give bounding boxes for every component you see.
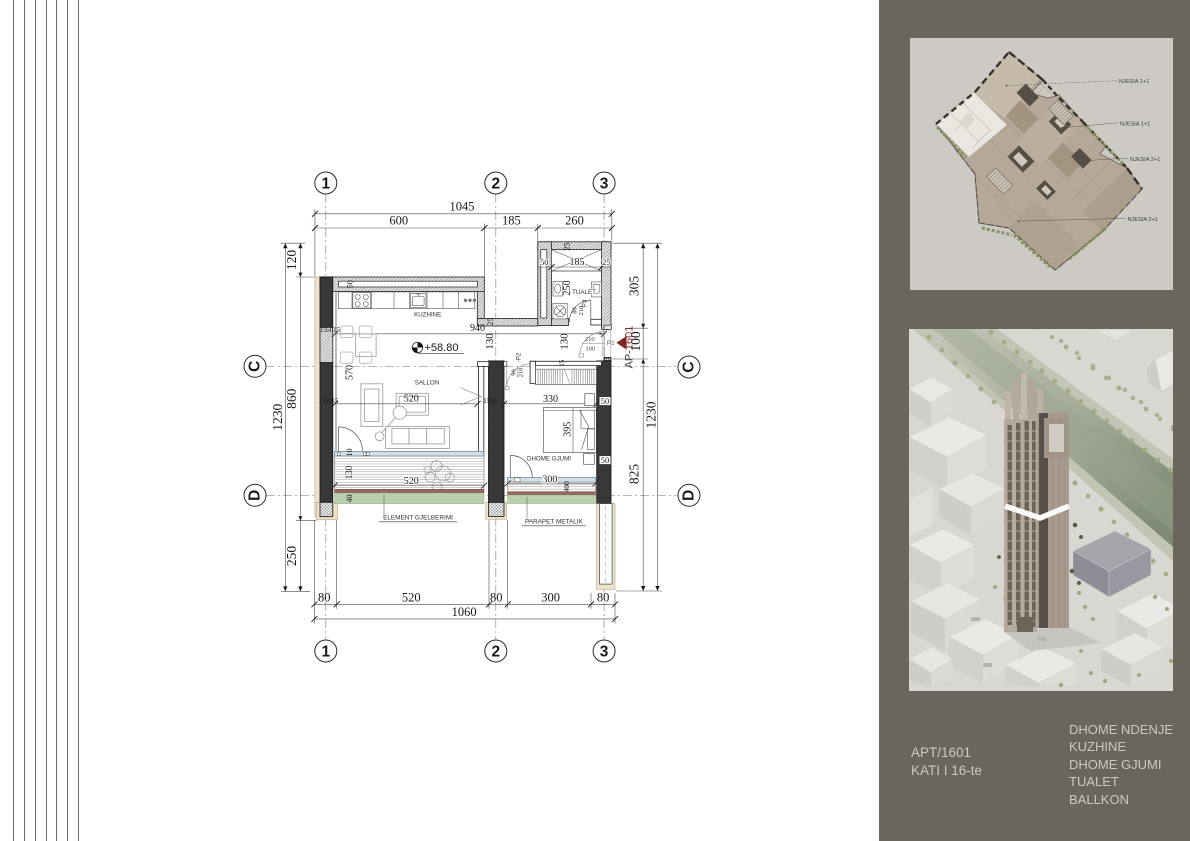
svg-text:50: 50	[345, 280, 354, 288]
svg-text:KUZHINE: KUZHINE	[414, 311, 441, 318]
svg-text:305: 305	[627, 276, 642, 297]
svg-text:ELEMENT GJELBERIMI: ELEMENT GJELBERIMI	[383, 515, 453, 522]
svg-text:NJESIA 1+1: NJESIA 1+1	[1119, 79, 1149, 85]
svg-text:185: 185	[570, 257, 585, 268]
svg-text:80: 80	[490, 591, 503, 605]
svg-text:130: 130	[484, 333, 496, 350]
svg-text:15: 15	[333, 326, 341, 334]
svg-text:210: 210	[517, 368, 524, 378]
svg-text:50: 50	[540, 257, 549, 267]
svg-text:260: 260	[565, 214, 584, 228]
svg-text:185: 185	[502, 214, 521, 228]
svg-text:D: D	[681, 490, 698, 501]
svg-text:80: 80	[597, 591, 610, 605]
svg-text:40: 40	[345, 495, 354, 503]
svg-text:300: 300	[541, 591, 560, 605]
svg-text:1230: 1230	[644, 401, 659, 428]
svg-text:AP-1601: AP-1601	[624, 326, 636, 369]
svg-text:NJESIA 1+1: NJESIA 1+1	[1120, 122, 1150, 128]
svg-text:120: 120	[284, 250, 299, 271]
svg-text:1060: 1060	[452, 605, 477, 619]
svg-text:600: 600	[389, 214, 408, 228]
svg-text:100: 100	[585, 346, 595, 353]
svg-text:2: 2	[491, 176, 500, 193]
svg-text:+58.80: +58.80	[425, 342, 459, 354]
svg-text:NJESIA 2+1: NJESIA 2+1	[1130, 157, 1160, 163]
svg-text:90: 90	[510, 369, 517, 376]
svg-text:50: 50	[601, 396, 610, 406]
svg-text:80: 80	[318, 591, 331, 605]
svg-text:TUALET: TUALET	[572, 289, 596, 296]
svg-text:P1: P1	[607, 340, 615, 347]
svg-text:860: 860	[284, 388, 299, 409]
svg-text:130: 130	[344, 465, 354, 479]
svg-text:520: 520	[402, 591, 421, 605]
svg-text:DHOME GJUMI: DHOME GJUMI	[527, 456, 571, 463]
svg-text:2: 2	[491, 644, 500, 661]
svg-text:PARAPET METALIK: PARAPET METALIK	[525, 519, 584, 526]
svg-text:1: 1	[321, 176, 330, 193]
svg-text:570: 570	[345, 365, 356, 380]
svg-text:330: 330	[543, 394, 558, 405]
svg-text:210: 210	[578, 306, 585, 316]
svg-text:15: 15	[332, 397, 340, 405]
svg-text:10: 10	[345, 449, 354, 457]
svg-text:SALLON: SALLON	[415, 380, 439, 387]
svg-text:D: D	[247, 490, 264, 501]
svg-text:C: C	[247, 361, 264, 372]
svg-text:3: 3	[600, 644, 609, 661]
svg-text:-P2: -P2	[517, 352, 523, 362]
svg-text:520: 520	[404, 476, 419, 487]
svg-text:25: 25	[562, 242, 572, 251]
svg-text:C: C	[681, 361, 698, 372]
svg-text:400: 400	[562, 481, 571, 493]
svg-text:3: 3	[600, 176, 609, 193]
svg-text:520: 520	[404, 394, 419, 405]
svg-text:25: 25	[486, 318, 495, 326]
svg-text:25: 25	[602, 257, 611, 267]
svg-text:210: 210	[585, 336, 595, 343]
svg-text:940: 940	[470, 323, 485, 334]
svg-text:825: 825	[627, 464, 642, 485]
svg-text:1230: 1230	[270, 404, 285, 431]
svg-text:130: 130	[559, 333, 571, 350]
svg-text:1045: 1045	[450, 200, 475, 214]
svg-text:250: 250	[284, 546, 299, 567]
svg-text:300: 300	[542, 475, 557, 486]
svg-text:395: 395	[562, 422, 573, 437]
svg-text:1: 1	[321, 644, 330, 661]
svg-text:50: 50	[601, 455, 610, 465]
svg-text:50: 50	[490, 397, 498, 405]
svg-text:NJESIA 2+1: NJESIA 2+1	[1128, 217, 1158, 223]
